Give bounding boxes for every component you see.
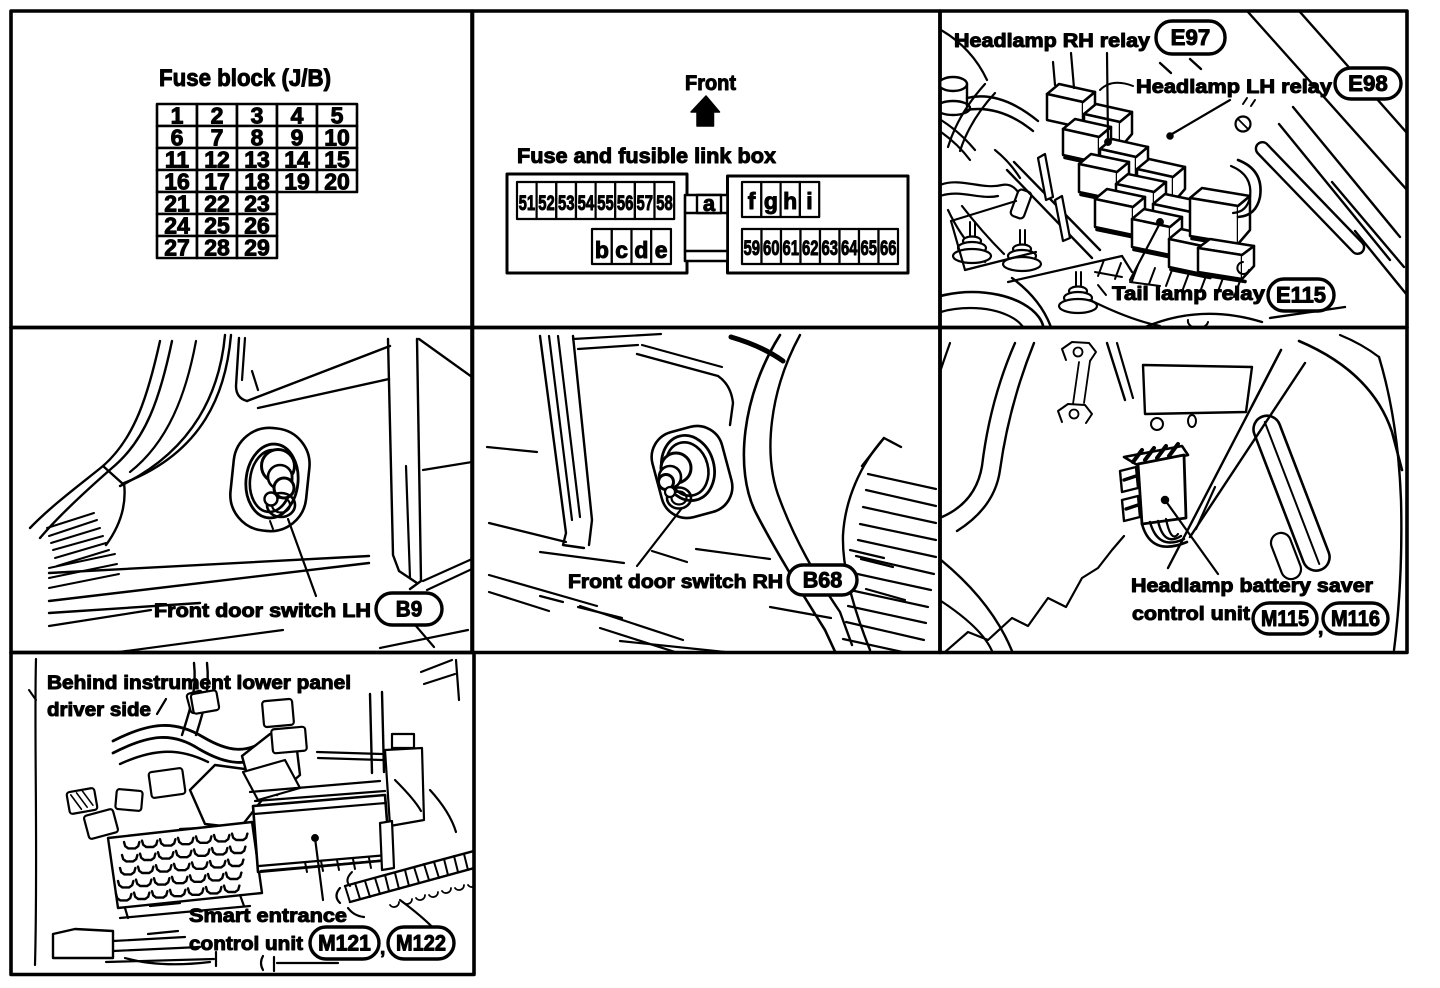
svg-text:control unit: control unit xyxy=(1132,604,1251,625)
svg-text:51: 51 xyxy=(519,192,536,215)
svg-text:M122: M122 xyxy=(396,931,446,956)
svg-text:Front door switch LH: Front door switch LH xyxy=(154,601,371,622)
svg-text:62: 62 xyxy=(802,237,819,260)
svg-text:B68: B68 xyxy=(803,568,843,593)
svg-text:29: 29 xyxy=(244,235,270,261)
svg-text:56: 56 xyxy=(617,192,634,215)
svg-text:Headlamp RH relay: Headlamp RH relay xyxy=(954,31,1150,52)
svg-text:55: 55 xyxy=(597,192,614,215)
svg-text:20: 20 xyxy=(324,169,350,195)
svg-text:53: 53 xyxy=(558,192,575,215)
svg-text:driver side: driver side xyxy=(47,700,151,721)
svg-text:E98: E98 xyxy=(1348,71,1388,96)
svg-text:27: 27 xyxy=(164,235,190,261)
svg-text:B9: B9 xyxy=(396,597,422,622)
svg-text:f: f xyxy=(748,188,756,214)
svg-text:c: c xyxy=(615,237,628,263)
svg-text:59: 59 xyxy=(744,237,761,260)
svg-text:52: 52 xyxy=(538,192,555,215)
svg-text:M115: M115 xyxy=(1261,606,1309,631)
svg-text:E115: E115 xyxy=(1276,283,1326,308)
svg-text:57: 57 xyxy=(637,192,654,215)
svg-text:Behind instrument lower panel: Behind instrument lower panel xyxy=(47,673,351,694)
svg-text:d: d xyxy=(634,237,648,263)
svg-text:g: g xyxy=(764,188,778,214)
svg-text:Headlamp LH relay: Headlamp LH relay xyxy=(1136,77,1332,98)
svg-text:E97: E97 xyxy=(1171,25,1211,50)
svg-text:19: 19 xyxy=(284,169,310,195)
svg-text:M116: M116 xyxy=(1331,606,1380,631)
svg-text:a: a xyxy=(703,191,716,216)
svg-text:b: b xyxy=(595,237,609,263)
svg-text:e: e xyxy=(655,237,668,263)
svg-text:Front: Front xyxy=(685,72,736,95)
svg-text:M121: M121 xyxy=(318,931,371,956)
svg-text:,: , xyxy=(380,938,385,959)
svg-text:Fuse block (J/B): Fuse block (J/B) xyxy=(159,65,331,92)
svg-text:60: 60 xyxy=(763,237,780,260)
svg-text:54: 54 xyxy=(578,192,595,215)
svg-text:66: 66 xyxy=(880,237,897,260)
svg-text:28: 28 xyxy=(204,235,230,261)
svg-text:63: 63 xyxy=(822,237,839,260)
svg-text:65: 65 xyxy=(861,237,878,260)
svg-text:Tail lamp relay: Tail lamp relay xyxy=(1112,284,1265,305)
svg-text:64: 64 xyxy=(841,237,858,260)
svg-text:i: i xyxy=(806,188,812,214)
svg-text:h: h xyxy=(783,188,797,214)
svg-text:Headlamp battery saver: Headlamp battery saver xyxy=(1131,576,1374,597)
svg-text:61: 61 xyxy=(783,237,800,260)
svg-text:Fuse and fusible link box: Fuse and fusible link box xyxy=(517,145,776,168)
svg-text:control unit: control unit xyxy=(189,934,304,955)
svg-text:Smart entrance: Smart entrance xyxy=(189,906,347,927)
svg-text:58: 58 xyxy=(656,192,673,215)
svg-text:Front door switch RH: Front door switch RH xyxy=(568,572,783,593)
